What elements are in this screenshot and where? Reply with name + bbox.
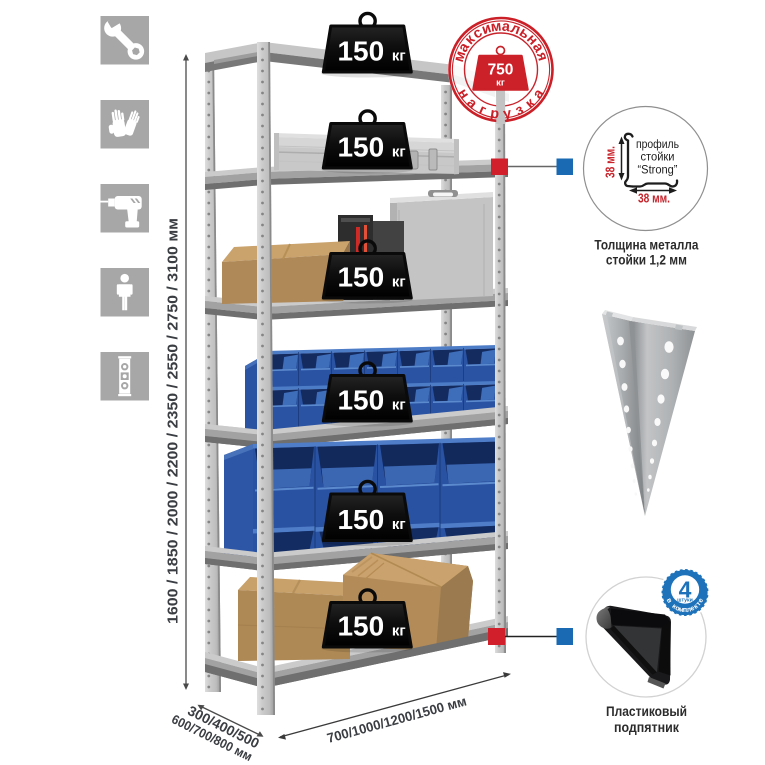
svg-text:38 мм.: 38 мм. [638,191,670,206]
svg-text:150: 150 [337,262,384,293]
svg-text:стойки 1,2 мм: стойки 1,2 мм [606,252,687,268]
svg-text:1600 / 1850 / 2000 / 2200 / 23: 1600 / 1850 / 2000 / 2200 / 2350 / 2550 … [165,218,182,624]
svg-text:кг: кг [392,516,406,533]
svg-text:Толщина металла: Толщина металла [594,237,698,253]
svg-text:750: 750 [488,62,514,79]
svg-text:кг: кг [392,274,406,291]
svg-text:150: 150 [337,132,384,163]
svg-text:“Strong”: “Strong” [638,163,678,177]
svg-text:150: 150 [337,385,384,416]
svg-text:кг: кг [392,144,406,161]
svg-text:кг: кг [496,78,505,89]
svg-text:кг: кг [392,623,406,640]
svg-text:150: 150 [337,36,384,67]
svg-text:150: 150 [337,504,384,535]
svg-text:38 мм.: 38 мм. [604,146,618,178]
svg-text:Пластиковый: Пластиковый [606,703,687,719]
svg-text:кг: кг [392,48,406,65]
svg-text:штуки: штуки [677,598,693,604]
svg-text:подпятник: подпятник [614,719,680,735]
svg-text:кг: кг [392,397,406,414]
svg-text:150: 150 [337,611,384,642]
